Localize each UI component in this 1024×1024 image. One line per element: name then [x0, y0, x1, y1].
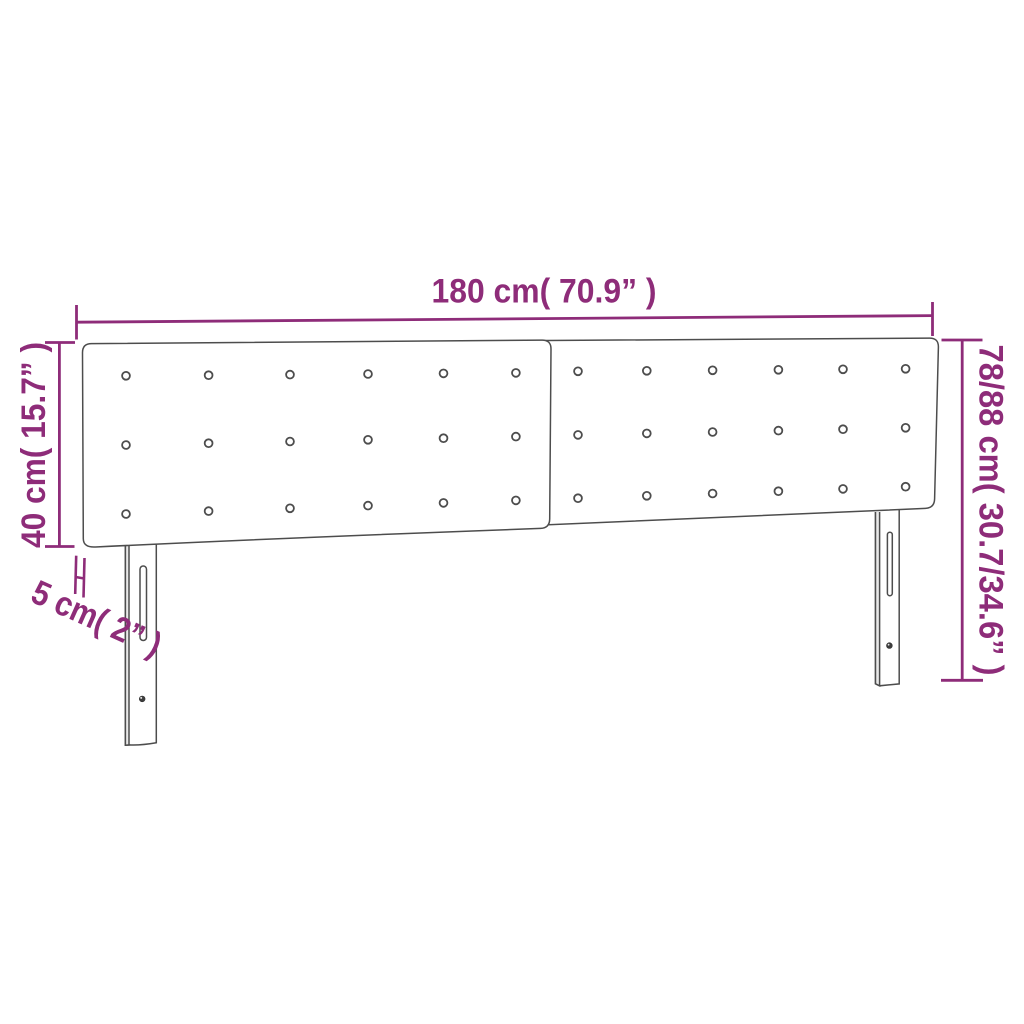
svg-text:78/88 cm( 30.7/34.6” ): 78/88 cm( 30.7/34.6” ) [972, 345, 1010, 676]
svg-text:180 cm( 70.9” ): 180 cm( 70.9” ) [432, 273, 657, 311]
svg-text:40 cm( 15.7” ): 40 cm( 15.7” ) [15, 342, 53, 548]
